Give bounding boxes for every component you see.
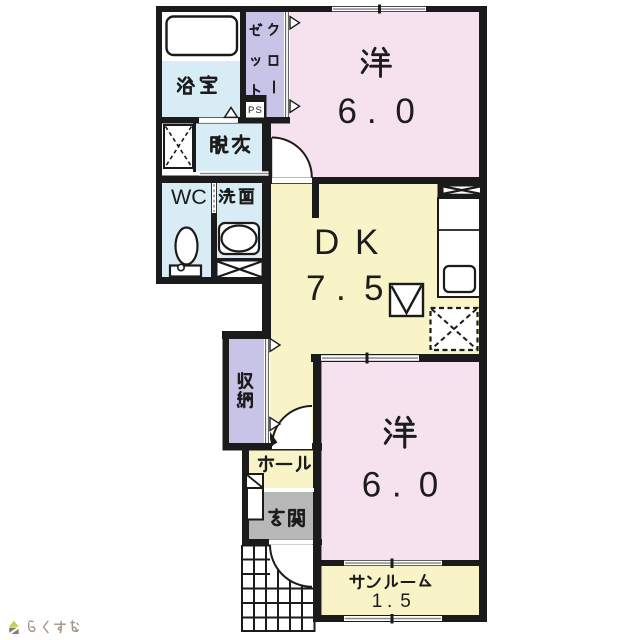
- svg-text:D: D: [314, 223, 339, 262]
- svg-text:6: 6: [362, 466, 381, 505]
- svg-text:K: K: [355, 223, 378, 262]
- svg-text:7: 7: [306, 269, 325, 308]
- svg-text:1: 1: [372, 591, 383, 612]
- svg-text:.: .: [336, 269, 346, 308]
- svg-text:.: .: [367, 92, 377, 131]
- svg-text:0: 0: [395, 92, 414, 131]
- svg-text:0: 0: [419, 466, 438, 505]
- svg-text:PS: PS: [248, 105, 263, 116]
- svg-text:5: 5: [400, 591, 411, 612]
- svg-text:.: .: [387, 591, 392, 612]
- svg-text:5: 5: [364, 269, 383, 308]
- svg-text:WC: WC: [171, 185, 207, 209]
- svg-text:.: .: [392, 466, 402, 505]
- svg-text:6: 6: [338, 92, 357, 131]
